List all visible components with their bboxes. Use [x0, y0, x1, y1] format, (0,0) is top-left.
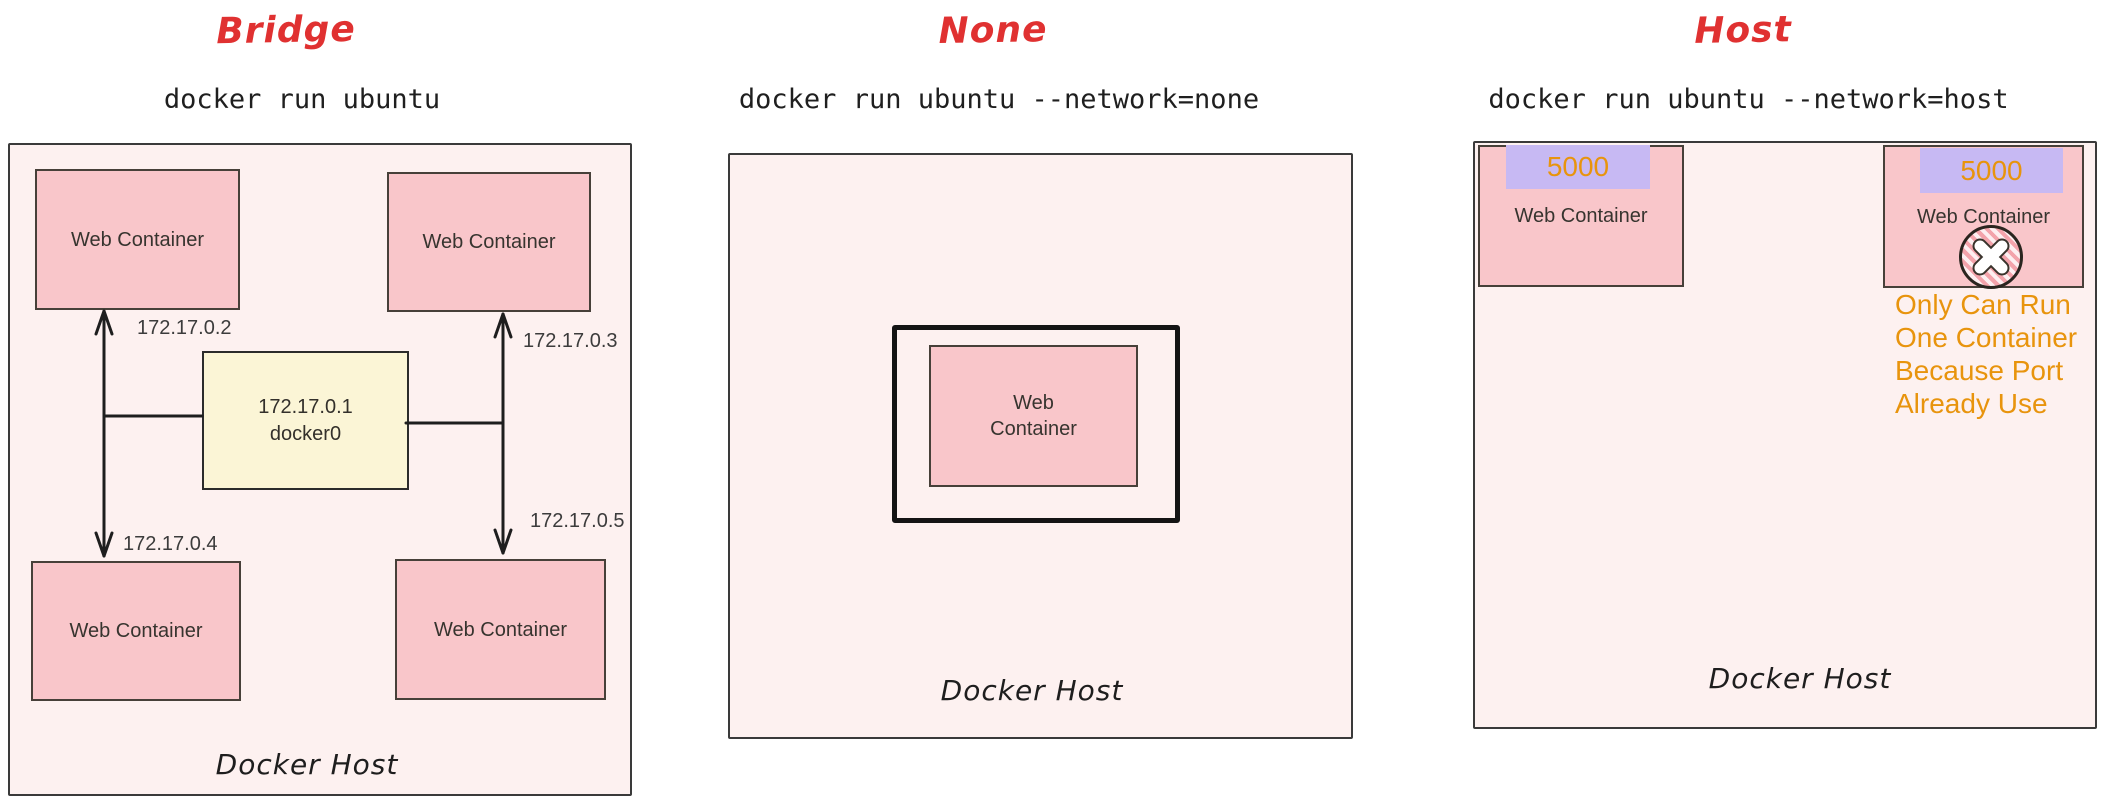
- port-badge-right: 5000: [1920, 148, 2063, 193]
- ip-label-bottom-left: 172.17.0.4: [123, 533, 218, 556]
- port-number: 5000: [1960, 155, 2022, 187]
- cross-x-icon: [1970, 236, 2012, 278]
- host-panel-title: Host: [1593, 7, 1894, 53]
- none-command: docker run ubuntu --network=none: [735, 84, 1263, 115]
- port-conflict-warning-text: Only Can Run One Container Because Port …: [1895, 288, 2077, 420]
- docker-networking-diagram: Bridge docker run ubuntu Web Container W…: [0, 0, 2102, 804]
- port-badge-left: 5000: [1506, 145, 1650, 189]
- host-docker-host-label: Docker Host: [1650, 662, 1950, 695]
- none-panel-title: None: [843, 7, 1144, 53]
- none-docker-host-label: Docker Host: [882, 674, 1182, 707]
- ip-label-top-right: 172.17.0.3: [523, 330, 618, 353]
- bridge-docker-host-label: Docker Host: [157, 748, 457, 781]
- ip-label-bottom-right: 172.17.0.5: [530, 510, 625, 533]
- port-number: 5000: [1547, 151, 1609, 183]
- warning-line: Already Use: [1895, 387, 2077, 420]
- warning-line: Because Port: [1895, 354, 2077, 387]
- warning-line: Only Can Run: [1895, 288, 2077, 321]
- port-conflict-cross-icon: [1959, 225, 2023, 289]
- warning-line: One Container: [1895, 321, 2077, 354]
- ip-label-top-left: 172.17.0.2: [137, 317, 232, 340]
- none-web-container: Web Container: [929, 345, 1138, 487]
- web-container-label: Web Container: [1514, 203, 1647, 229]
- web-container-label: Web Container: [976, 390, 1092, 442]
- host-command: docker run ubuntu --network=host: [1484, 84, 2013, 115]
